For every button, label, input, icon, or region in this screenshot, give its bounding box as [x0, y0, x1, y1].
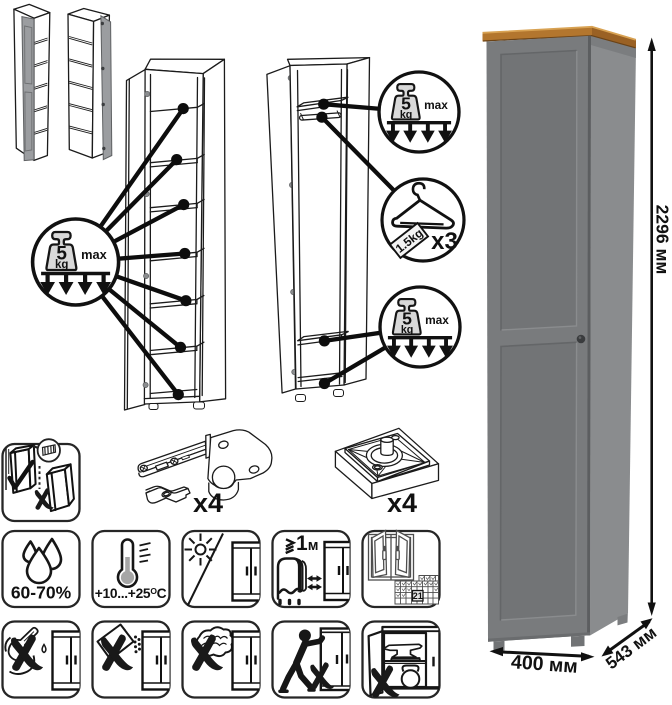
svg-text:2296 мм: 2296 мм [653, 205, 672, 275]
svg-text:x4: x4 [193, 488, 223, 518]
svg-text:x4: x4 [387, 488, 417, 518]
svg-text:60-70%: 60-70% [11, 583, 72, 603]
svg-text:x3: x3 [431, 228, 458, 255]
svg-text:400 мм: 400 мм [510, 651, 578, 678]
svg-text:+10...+25OC: +10...+25OC [95, 586, 167, 601]
svg-text:21: 21 [413, 591, 423, 601]
